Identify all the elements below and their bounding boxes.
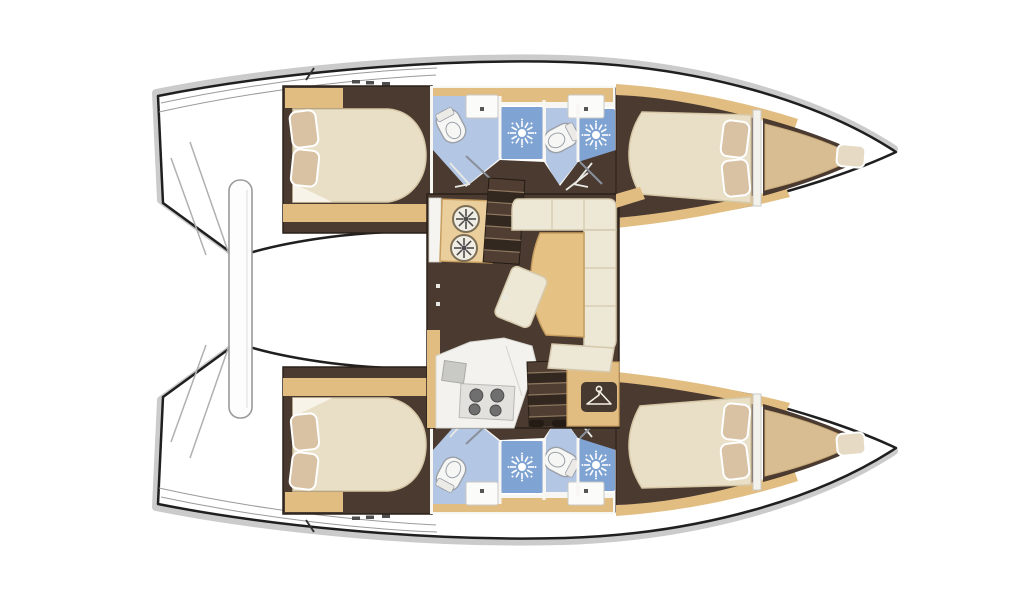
instrument-dial-icon bbox=[451, 235, 477, 261]
stairs-starboard-hull bbox=[527, 361, 569, 426]
davit-bar bbox=[229, 180, 252, 418]
floorplan-canvas bbox=[0, 0, 1024, 600]
instrument-dial-icon bbox=[453, 206, 479, 232]
companionway-handle bbox=[552, 420, 567, 427]
stove bbox=[459, 384, 515, 421]
settee-end-seat bbox=[548, 344, 614, 372]
companionway-handle bbox=[529, 420, 544, 427]
saloon bbox=[427, 178, 645, 428]
catamaran-floorplan bbox=[0, 0, 1024, 600]
galley-sink bbox=[442, 361, 467, 384]
nav-side-panel bbox=[429, 198, 441, 262]
